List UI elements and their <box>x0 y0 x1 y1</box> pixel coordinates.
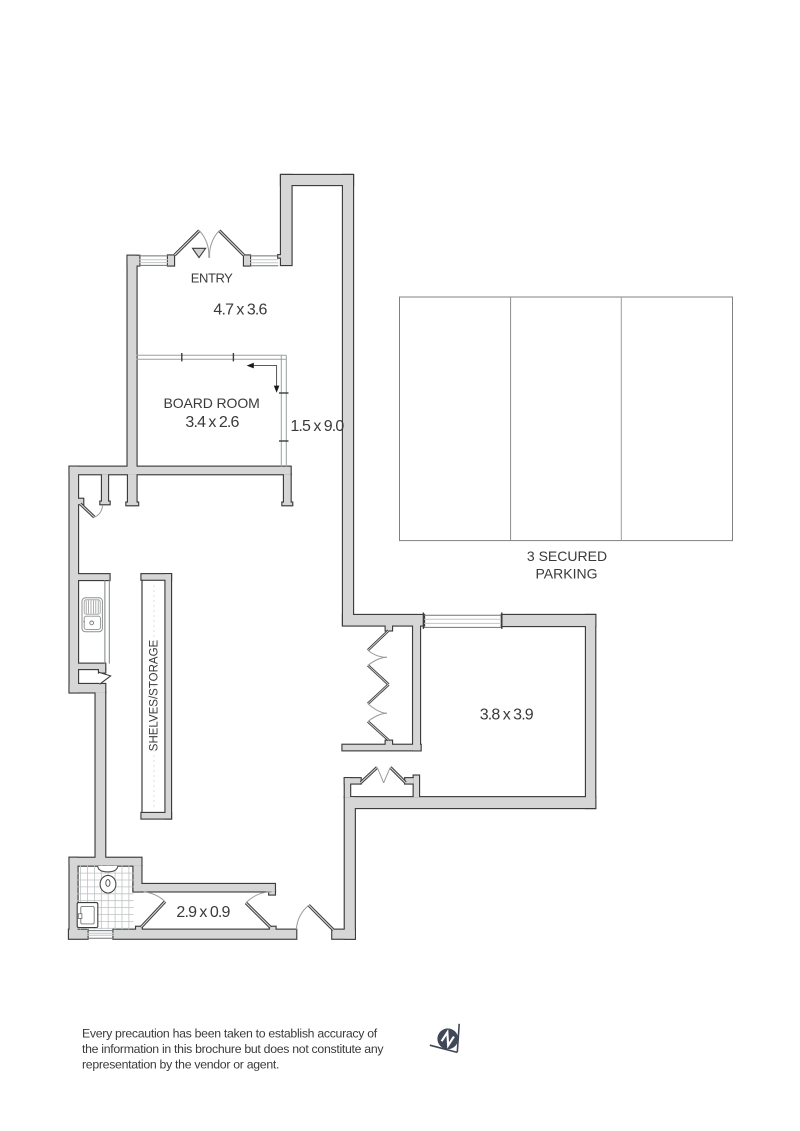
svg-text:representation by the vendor o: representation by the vendor or agent. <box>82 1057 279 1071</box>
svg-text:2.9 x 0.9: 2.9 x 0.9 <box>176 904 230 921</box>
svg-text:Every precaution has been take: Every precaution has been taken to estab… <box>82 1027 378 1041</box>
svg-text:PARKING: PARKING <box>536 565 598 581</box>
svg-text:1.5 x 9.0: 1.5 x 9.0 <box>290 418 344 435</box>
svg-text:3 SECURED: 3 SECURED <box>527 548 607 564</box>
svg-text:the information in this brochu: the information in this brochure but doe… <box>82 1042 384 1056</box>
svg-text:ENTRY: ENTRY <box>191 270 233 285</box>
svg-text:3.8 x 3.9: 3.8 x 3.9 <box>480 706 534 723</box>
svg-text:BOARD ROOM: BOARD ROOM <box>163 395 259 411</box>
svg-text:SHELVES/STORAGE: SHELVES/STORAGE <box>148 639 160 751</box>
svg-text:4.7 x 3.6: 4.7 x 3.6 <box>213 302 267 319</box>
svg-text:3.4 x 2.6: 3.4 x 2.6 <box>185 414 239 431</box>
